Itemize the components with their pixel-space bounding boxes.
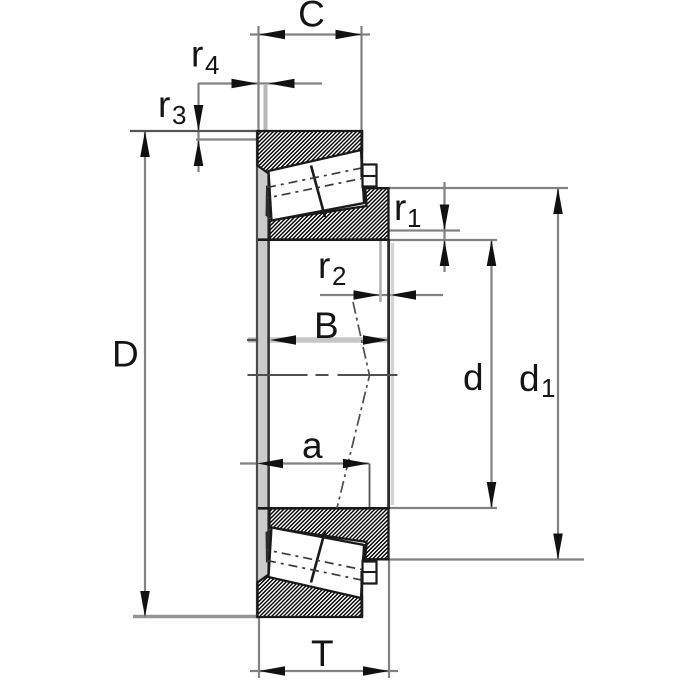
svg-text:1: 1 <box>541 373 555 403</box>
svg-text:D: D <box>112 334 139 375</box>
svg-text:d: d <box>519 358 540 399</box>
svg-text:C: C <box>298 0 325 35</box>
svg-text:r: r <box>394 187 406 228</box>
svg-text:r: r <box>158 84 170 125</box>
svg-text:B: B <box>314 305 339 346</box>
svg-text:4: 4 <box>205 50 219 80</box>
svg-text:1: 1 <box>407 203 421 233</box>
svg-text:d: d <box>463 357 484 398</box>
svg-text:2: 2 <box>332 261 346 291</box>
svg-text:3: 3 <box>172 100 186 130</box>
svg-text:r: r <box>318 245 330 286</box>
svg-text:a: a <box>302 425 323 466</box>
svg-text:r: r <box>191 34 203 75</box>
svg-text:T: T <box>311 633 334 674</box>
